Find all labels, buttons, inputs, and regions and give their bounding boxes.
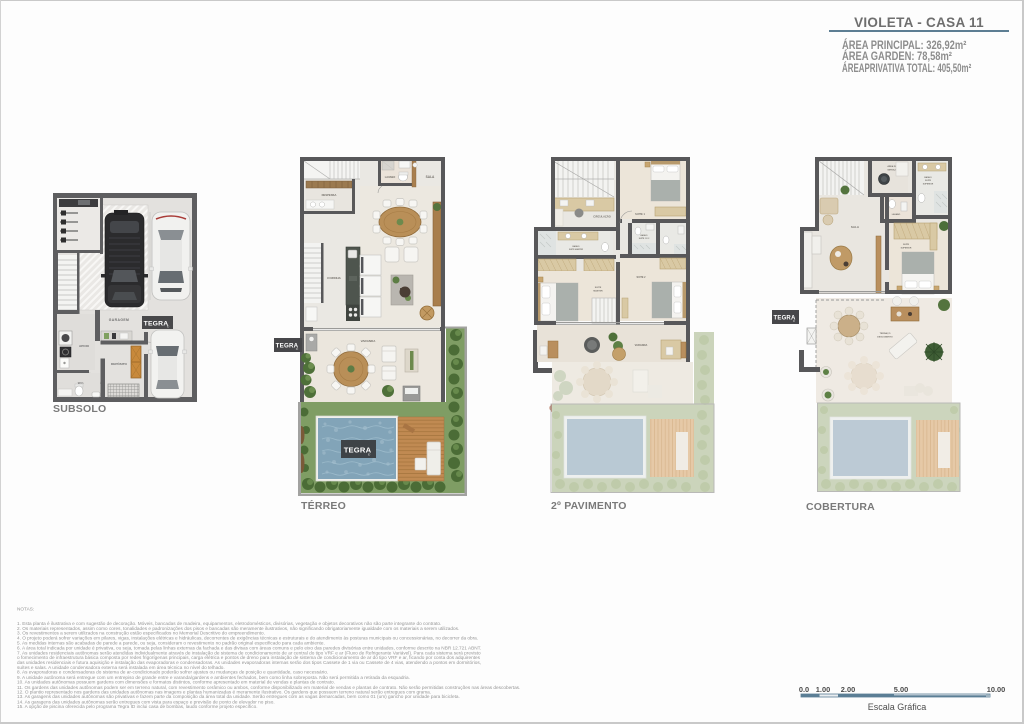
svg-text:VARANDA: VARANDA [361,339,377,343]
svg-text:SUPERIOR: SUPERIOR [901,247,912,249]
svg-text:ID: ID [296,348,299,351]
svg-text:DESCOBERTO: DESCOBERTO [877,337,893,339]
svg-text:SERVIÇO: SERVIÇO [887,170,897,172]
svg-text:2.00: 2.00 [841,685,855,694]
svg-text:SUITE 2: SUITE 2 [636,276,646,279]
svg-text:SUITE: SUITE [903,244,910,246]
svg-text:TEGRA: TEGRA [144,321,169,328]
svg-text:SUITE 1 E 2: SUITE 1 E 2 [639,238,650,240]
svg-text:TERRAÇO: TERRAÇO [880,332,891,335]
svg-text:APOIO: APOIO [79,344,90,348]
svg-text:DESPENSA: DESPENSA [322,193,337,197]
svg-text:VARANDA: VARANDA [635,343,648,347]
svg-text:SUITE: SUITE [925,180,932,182]
svg-text:ID: ID [167,325,170,329]
svg-text:0.0: 0.0 [799,685,809,694]
svg-text:SUITE MASTER: SUITE MASTER [569,248,584,251]
svg-text:Escala Gráfica: Escala Gráfica [868,702,927,712]
svg-text:MASTER: MASTER [593,290,603,293]
svg-text:ID: ID [368,453,371,457]
svg-text:DEPÓSITO: DEPÓSITO [111,361,128,366]
svg-text:BANHO: BANHO [573,245,580,248]
svg-text:SALA: SALA [426,175,435,179]
svg-text:BANHO: BANHO [924,176,932,179]
svg-text:SUITE 1: SUITE 1 [635,212,645,216]
svg-text:SUITE: SUITE [595,287,602,289]
svg-text:ID: ID [793,321,796,323]
svg-text:10.00: 10.00 [987,685,1006,694]
svg-text:5.00: 5.00 [894,685,908,694]
svg-text:1.00: 1.00 [816,685,830,694]
svg-text:SUPERIOR: SUPERIOR [923,183,934,185]
svg-text:BANHO: BANHO [641,234,648,237]
svg-text:LAVABO: LAVABO [385,175,396,179]
svg-text:LAVABO: LAVABO [892,213,901,216]
svg-text:GARAGEM: GARAGEM [109,318,130,322]
svg-text:SALA: SALA [851,225,860,229]
svg-text:COZINHA: COZINHA [327,276,341,280]
